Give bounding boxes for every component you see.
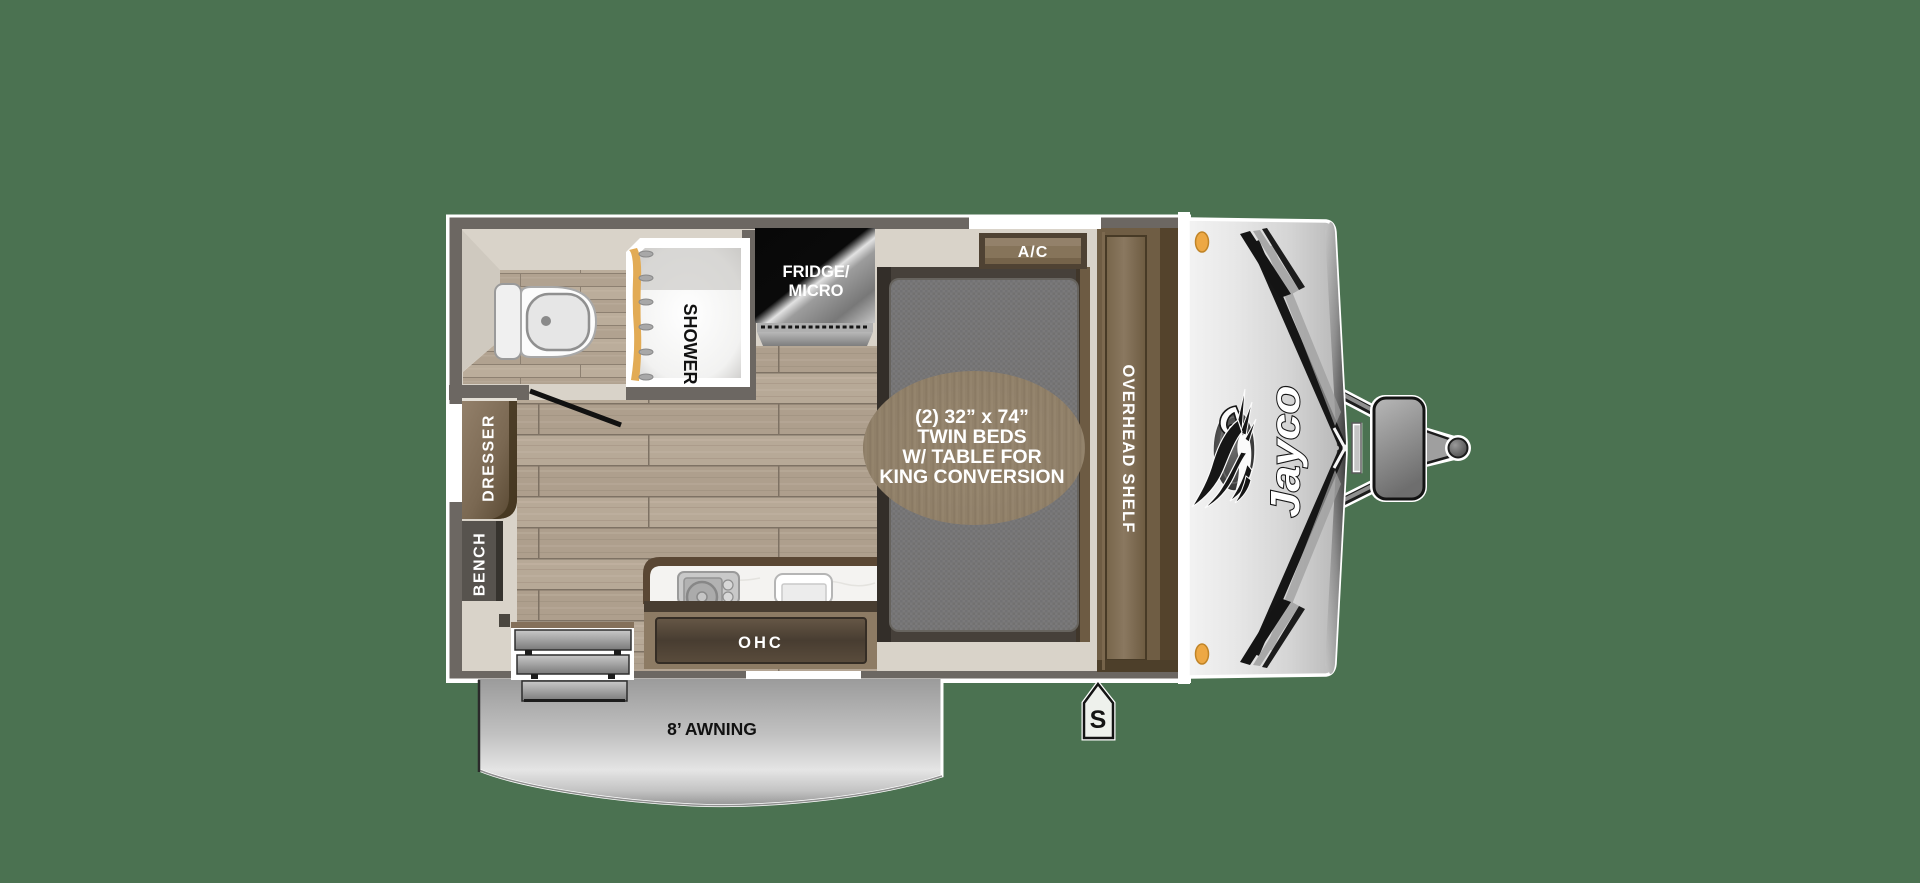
svg-text:BENCH: BENCH <box>472 532 489 596</box>
svg-text:FRIDGE/: FRIDGE/ <box>783 263 850 281</box>
svg-text:DRESSER: DRESSER <box>481 414 498 502</box>
svg-text:S: S <box>1090 706 1107 734</box>
svg-text:MICRO: MICRO <box>789 282 844 300</box>
svg-text:8’ AWNING: 8’ AWNING <box>667 719 757 739</box>
svg-text:KING CONVERSION: KING CONVERSION <box>879 466 1064 488</box>
svg-text:Jayco: Jayco <box>1262 386 1308 518</box>
svg-text:OVERHEAD SHELF: OVERHEAD SHELF <box>1119 365 1137 534</box>
svg-text:W/ TABLE FOR: W/ TABLE FOR <box>902 446 1041 468</box>
svg-text:OHC: OHC <box>738 634 784 652</box>
svg-text:A/C: A/C <box>1018 244 1049 261</box>
svg-text:TWIN BEDS: TWIN BEDS <box>917 426 1026 448</box>
svg-text:(2) 32” x 74”: (2) 32” x 74” <box>915 406 1029 428</box>
svg-text:SHOWER: SHOWER <box>680 304 700 385</box>
